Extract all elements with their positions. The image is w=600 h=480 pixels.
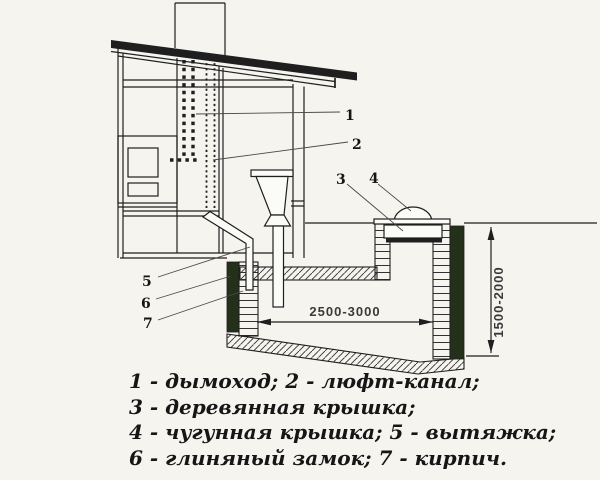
callout-7: 7 [143, 316, 153, 332]
outhouse-pit-diagram: 2500-3000 1500-2000 1 2 3 4 5 6 7 [0, 0, 600, 480]
callout-5: 5 [142, 274, 152, 290]
ceiling-lines [123, 80, 293, 87]
callout-4: 4 [369, 171, 379, 187]
stove-door [128, 148, 158, 177]
legend-line-4: 6 - глиняный замок; 7 - кирпич. [129, 446, 556, 472]
legend: 1 - дымоход; 2 - люфт-канал; 3 - деревян… [129, 369, 556, 471]
legend-line-2: 3 - деревянная крышка; [129, 395, 556, 421]
inspection-hatch [374, 207, 464, 359]
arrow-left [257, 319, 271, 326]
wooden-cover-board [384, 225, 442, 238]
hatch-frame-top [374, 219, 450, 224]
chimney [175, 3, 225, 57]
funnel-bell [265, 215, 291, 226]
pit-width-value: 2500-3000 [309, 304, 380, 319]
funnel-pipe [273, 226, 284, 307]
legend-line-1: 1 - дымоход; 2 - люфт-канал; [129, 369, 556, 395]
arrow-down [488, 340, 495, 353]
arrow-right [419, 319, 433, 326]
floor-lines [120, 253, 293, 258]
pit-bottom [227, 334, 464, 374]
brick-wall-right [433, 224, 450, 359]
legend-line-3: 4 - чугунная крышка; 5 - вытяжка; [129, 420, 556, 446]
clay-lock-left [227, 262, 239, 332]
callout-1: 1 [345, 108, 355, 124]
pit-depth-value: 1500-2000 [491, 266, 506, 337]
funnel-cone [256, 177, 288, 216]
funnel-mouth [251, 170, 293, 177]
pit-ceiling-slab [240, 267, 377, 280]
callout-3: 3 [336, 172, 346, 188]
cover-shadow [386, 238, 442, 243]
dimension-depth: 1500-2000 [466, 227, 506, 356]
arrow-up [488, 227, 495, 240]
clay-lock-right [450, 226, 464, 359]
outhouse-structure [111, 40, 357, 258]
stove-ash-door [128, 183, 158, 196]
left-wall [118, 48, 123, 258]
callout-6: 6 [141, 296, 151, 312]
callout-2: 2 [352, 137, 362, 153]
stove-panel [118, 136, 177, 203]
right-wall [293, 84, 304, 258]
